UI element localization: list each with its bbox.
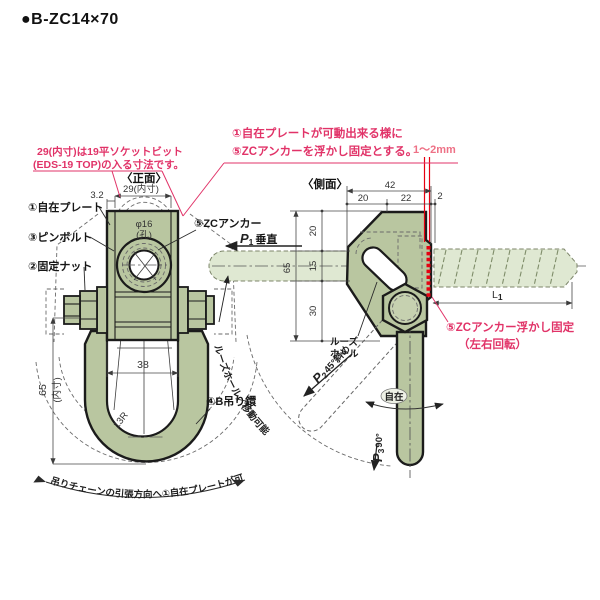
zc-anchor-threads <box>434 249 577 287</box>
dim-l-sub: 1 <box>498 292 503 302</box>
dim-22w: 22 <box>401 193 412 204</box>
dim-65-note: (内寸) <box>51 377 63 402</box>
swivel-pill-label: 自在 <box>384 391 404 403</box>
top-note-line2: ⑤ZCアンカーを浮かし固定とする。 <box>232 144 417 158</box>
fixing-nut-right <box>178 287 214 333</box>
svg-text:P1垂直: P1垂直 <box>240 231 277 247</box>
loose-move-arc-text: ルーズホール／移動可能 <box>212 344 273 438</box>
front-view: φ16 (孔) 〈正面〉 29(内寸) 3.2 38 65 <box>0 0 257 501</box>
dim-2w: 2 <box>437 191 442 202</box>
p1-direction: P1垂直 <box>226 231 302 247</box>
hole-dia-label: φ16 <box>136 219 153 230</box>
label-part2: ②固定ナット <box>28 259 92 273</box>
dim-65-front: 65 <box>37 384 49 396</box>
label-part1: ①自在プレート <box>28 200 103 214</box>
dim-29: 29(内寸) <box>123 183 159 195</box>
float-note-line1: ⑤ZCアンカー浮かし固定 <box>446 320 575 334</box>
dim-38: 38 <box>137 359 149 371</box>
float-note-line2: （左右回転） <box>458 337 527 351</box>
svg-text:P390°: P390° <box>370 433 386 462</box>
top-note-line1: ①自在プレートが可動出来る様に <box>232 126 403 140</box>
dim-30h: 30 <box>308 306 319 317</box>
diagram-page: ●B-ZC14×70 <box>0 0 600 600</box>
dim-3-2: 3.2 <box>90 190 103 201</box>
side-view-title: 〈側面〉 <box>302 177 348 191</box>
fixing-nut-left <box>64 287 107 333</box>
label-part5: ⑤ZCアンカー <box>194 217 262 230</box>
svg-text:L1: L1 <box>492 289 503 302</box>
front-view-title: 〈正面〉 <box>121 171 167 185</box>
label-part3: ③ピンボルト <box>28 230 92 244</box>
socket-note-line2: (EDS-19 TOP)の入る寸法です。 <box>33 158 184 171</box>
technical-diagram: φ16 (孔) 〈正面〉 29(内寸) 3.2 38 65 <box>0 0 600 600</box>
hole-word-label: (孔) <box>136 230 152 241</box>
dim-15h: 15 <box>308 261 319 272</box>
gap-dim-label: 1〜2mm <box>413 144 456 156</box>
dim-20w: 20 <box>358 193 369 204</box>
dim-20h: 20 <box>308 226 319 237</box>
dim-42: 42 <box>385 180 396 191</box>
socket-note-line1: 29(内寸)は19平ソケットビット <box>37 145 183 158</box>
dim-65-side: 65 <box>282 263 293 274</box>
